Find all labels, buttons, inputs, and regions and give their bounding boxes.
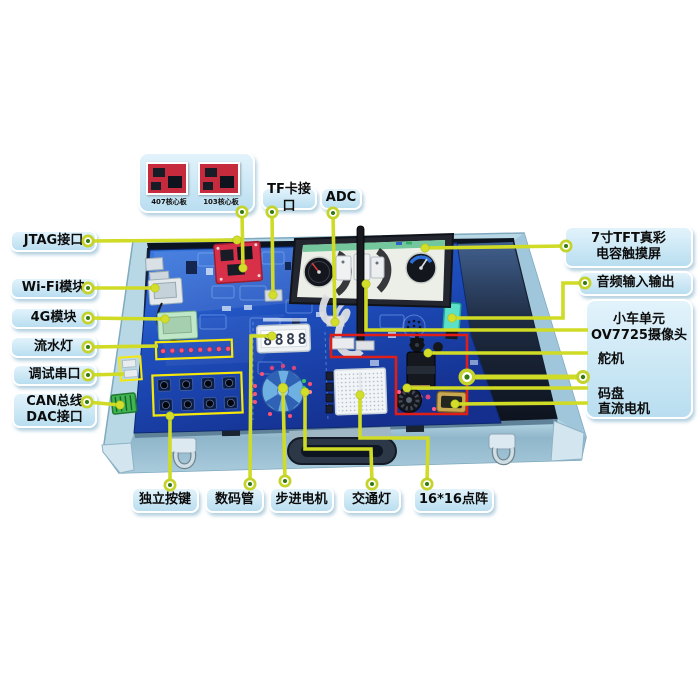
track-arc [337,254,348,293]
leader-lines [87,212,588,485]
label-adc: ADC [320,187,362,210]
leader-tf-card [272,212,273,295]
case-latch-right [489,434,515,462]
case-front-lip [134,419,558,438]
label-led-strip: 流水灯 [10,336,97,358]
label-jtag: JTAG接口 [10,230,97,252]
label-segment-display: 数码管 [205,487,264,513]
debug-uart-connector [119,356,142,380]
4g-module [157,311,197,340]
stepper-motor [262,370,304,412]
core-board-407-figure: 407核心板 [146,162,192,207]
case-corner-protector-right [551,421,584,461]
case-latch-left [170,438,196,466]
case-foam-area [456,242,557,424]
leader-audio [452,283,585,318]
label-dc-motor: 直流电机 [598,398,650,417]
tf-card-slot [265,290,282,302]
usb-ethernet-connectors [145,257,169,283]
label-ov7725-camera: OV7725摄像头 [587,324,691,343]
label-servo: 舵机 [598,348,624,367]
board-end-dots [116,236,459,420]
track-arc [378,251,388,290]
gauge-right [406,253,436,283]
bracket-screw [342,261,345,264]
label-car-unit-group: 小车单元 OV7725摄像头 舵机 码盘 直流电机 [585,299,693,419]
car-bracket [336,256,351,280]
dot-large-car-zone [459,369,476,386]
leader-tft [425,246,566,248]
case-interior [137,240,558,437]
bracket-screw [361,259,364,262]
antenna-wire [157,303,184,341]
can-terminal [111,393,137,414]
tft-screen [290,234,453,307]
chip [205,168,217,177]
screen-bezel [290,234,453,307]
case-corner-protector-left [102,443,134,473]
servo [407,333,443,400]
label-audio: 音频输入输出 [578,271,693,296]
traffic-light-leds [302,379,312,397]
car-unit-red-outline [331,335,467,414]
carrying-case [102,233,586,473]
wifi-module [148,278,183,305]
case-handle [288,427,396,464]
speaker-holes [407,320,422,333]
leader-jtag [88,240,237,241]
label-keys: 独立按键 [131,487,199,513]
label-debug-uart: 调试串口 [12,364,97,386]
screen-top-bar [303,240,445,252]
label-dot-matrix: 16*16点阵 [413,487,494,513]
leader-traffic [305,392,372,484]
core-board-407-photo [146,162,188,195]
leader-segment [250,336,272,484]
main-board: 8888 [111,241,501,433]
adc-connector [327,316,344,326]
board-glare [160,314,285,366]
segment-display: 8888 [257,324,311,353]
label-can-line2: DAC接口 [26,410,82,426]
chip [151,182,161,190]
led-strip [156,340,233,360]
ribbon-cable [323,296,361,355]
leader-adc [333,213,335,322]
leader-camera [366,284,588,330]
leader-matrix [360,395,428,484]
label-wifi: Wi-Fi模块 [10,277,97,299]
case-front-face [119,419,586,473]
handle-mount-plate [289,427,394,453]
leader-stepper [283,388,285,481]
segment-digits: 8888 [263,330,310,350]
camera-pole [357,226,364,348]
chip [220,176,234,188]
leader-dc-motor [455,403,588,404]
adc-ribbon [336,295,352,316]
label-can-dac: CAN总线 DAC接口 [12,392,97,428]
misc-leds [253,372,292,418]
independent-keys [152,372,242,415]
car-bracket [354,254,370,280]
leader-led-strip [88,346,158,347]
label-tft: 7寸TFT真彩 电容触摸屏 [564,226,693,268]
leader-core-board [242,212,243,268]
base-connector [330,338,354,349]
label-traffic-light: 交通灯 [342,487,401,513]
gauge-left [304,257,334,287]
core-board-card: 407核心板 103核心板 [138,152,255,213]
zone-led [397,390,401,394]
bracket-screw [376,262,379,265]
screen-bar-chip [396,242,402,245]
matrix-driver-sockets [326,372,333,413]
joystick-switches [270,364,296,370]
car-bracket [371,257,384,278]
label-stepper: 步进电机 [269,487,334,513]
hinge-recess [222,429,240,436]
car-unit [323,226,384,355]
hinge-recess [406,425,424,432]
label-tft-line1: 7寸TFT真彩 [591,231,666,247]
chip [168,176,182,188]
small-components [186,256,478,366]
label-can-line1: CAN总线 [26,394,82,410]
case-outer-shell [103,233,586,473]
seg-header [263,318,307,322]
screen-bar-chip [406,242,412,245]
silkscreen-outlines [198,251,450,420]
chip [203,182,213,190]
key-buttons [157,377,237,412]
board-pcb [134,243,501,433]
audio-module [442,302,460,339]
label-tf-card: TF卡接口 [261,187,317,210]
dot [279,475,292,488]
base-connector [356,341,374,350]
label-4g: 4G模块 [10,307,97,329]
dc-motor [437,392,467,413]
leader-4g [88,318,165,319]
board-glare [154,247,330,315]
core-board-103-figure: 103核心板 [198,162,244,207]
screen-panel [297,240,445,301]
core-board-103-photo [198,162,240,195]
core-board-103-caption: 103核心板 [198,197,244,207]
infographic-stage: 407核心板 103核心板 TF卡接口 ADC JTAG接口 Wi-Fi模块 4… [0,0,700,700]
dot-matrix [334,368,387,415]
chip [153,168,165,177]
encoder-wheel [397,388,422,413]
case-lid-edge [147,238,515,253]
core-board-407-caption: 407核心板 [146,197,192,207]
zone-led [432,407,436,411]
mcu-core-board [214,241,263,283]
label-dots [81,206,592,492]
label-tft-line2: 电容触摸屏 [596,247,661,263]
